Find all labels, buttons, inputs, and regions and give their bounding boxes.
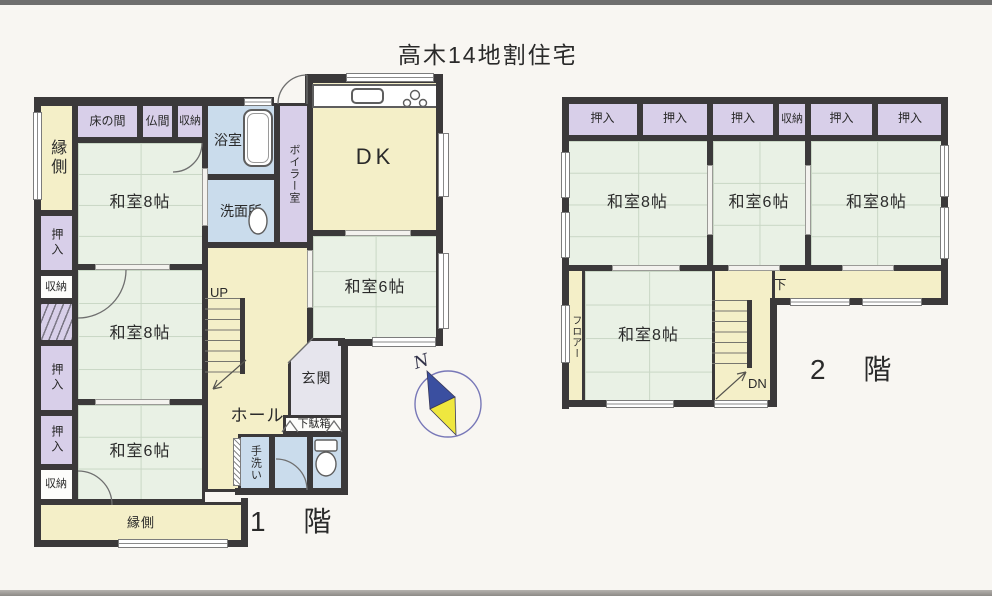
window — [940, 207, 949, 259]
wall-segment — [562, 97, 948, 104]
room-shuunou-1f-left2: 収納 — [37, 467, 75, 502]
stairs-down — [712, 300, 752, 368]
wall-segment — [770, 298, 777, 407]
sliding-door — [805, 165, 811, 235]
room-oshiire-2f-1: 押入 — [565, 100, 640, 138]
room-boiler: ボイラー室 — [277, 103, 310, 245]
window — [438, 253, 449, 329]
label-floor1: 1 階 — [250, 500, 346, 540]
window — [372, 337, 436, 347]
room-engawa-left: 縁側 — [37, 103, 75, 213]
window — [561, 305, 570, 363]
compass-north-label: N — [411, 350, 431, 374]
window — [790, 298, 850, 306]
room-oshiire-2f-5: 押入 — [875, 100, 945, 138]
label-floor2: 2 階 — [810, 348, 906, 388]
sliding-door — [612, 265, 680, 271]
window — [33, 112, 42, 200]
room-oshiire-2f-4: 押入 — [808, 100, 875, 138]
page-title: 高木14地割住宅 — [398, 36, 578, 70]
wall-segment — [241, 498, 248, 544]
room-washitsu6-1f-a: 和室6帖 — [75, 402, 205, 502]
room-washitsu6-1f-b: 和室6帖 — [310, 233, 440, 343]
scan-edge-bottom — [0, 590, 992, 596]
stairs-up — [205, 298, 245, 374]
scan-edge-top — [0, 0, 992, 5]
compass-icon — [415, 371, 481, 437]
room-washitsu6-2f: 和室6帖 — [710, 138, 808, 268]
room-shuunou-1f-top: 収納 — [175, 103, 205, 140]
sliding-door — [202, 168, 208, 226]
room-washitsu8-1f-b: 和室8帖 — [75, 267, 205, 402]
door-arc-boiler — [278, 75, 307, 104]
room-butsuma: 仏間 — [140, 103, 175, 140]
room-oshiire-1f-1: 押入 — [37, 213, 75, 273]
room-getabako: 下駄箱 — [283, 415, 345, 434]
room-oshiire-2f-3: 押入 — [710, 100, 776, 138]
room-washitsu8-2f-b: 和室8帖 — [808, 138, 945, 268]
window — [561, 152, 570, 198]
label-stairs-up: UP — [210, 285, 228, 300]
window-hatched — [233, 438, 241, 486]
sliding-door — [707, 165, 713, 235]
room-shuunou-2f: 収納 — [776, 100, 808, 138]
room-washcorner — [272, 434, 310, 492]
wall-segment — [341, 339, 348, 494]
kitchen-sink — [351, 88, 384, 104]
room-tokonoma: 床の間 — [75, 103, 140, 140]
room-tearai: 手洗い — [238, 434, 272, 492]
window — [438, 133, 449, 197]
room-senmenjo: 洗面所 — [205, 177, 277, 245]
room-shuunou-1f-left1: 収納 — [37, 273, 75, 301]
room-toilet — [310, 434, 345, 492]
window — [940, 145, 949, 197]
room-oshiire-1f-2: 押入 — [37, 343, 75, 413]
room-washitsu8-2f-a: 和室8帖 — [565, 138, 710, 268]
sliding-door — [95, 264, 170, 270]
sliding-door — [345, 230, 411, 236]
room-oshiire-2f-2: 押入 — [640, 100, 710, 138]
wall-segment — [34, 97, 274, 104]
window — [561, 212, 570, 258]
room-oshiire-1f-3: 押入 — [37, 413, 75, 467]
sliding-door — [728, 265, 780, 271]
window — [606, 400, 674, 408]
room-washitsu8-1f-a: 和室8帖 — [75, 140, 205, 267]
window — [862, 298, 922, 306]
window — [244, 98, 272, 106]
sliding-door — [307, 250, 313, 308]
room-closet-hatched — [37, 301, 75, 343]
floorplan-page: 高木14地割住宅 縁側 押入 収納 押入 押入 収納 床の間 仏間 収納 和室8… — [0, 0, 992, 596]
sliding-door — [95, 399, 170, 405]
wall-segment — [941, 97, 948, 305]
window — [714, 400, 768, 408]
window — [346, 73, 434, 82]
room-washitsu8-2f-c: 和室8帖 — [582, 268, 715, 405]
bathtub-inner — [247, 113, 269, 163]
wall-segment — [235, 488, 348, 495]
window — [118, 539, 228, 548]
label-stairs-down: DN — [748, 376, 767, 391]
sliding-door — [842, 265, 894, 271]
